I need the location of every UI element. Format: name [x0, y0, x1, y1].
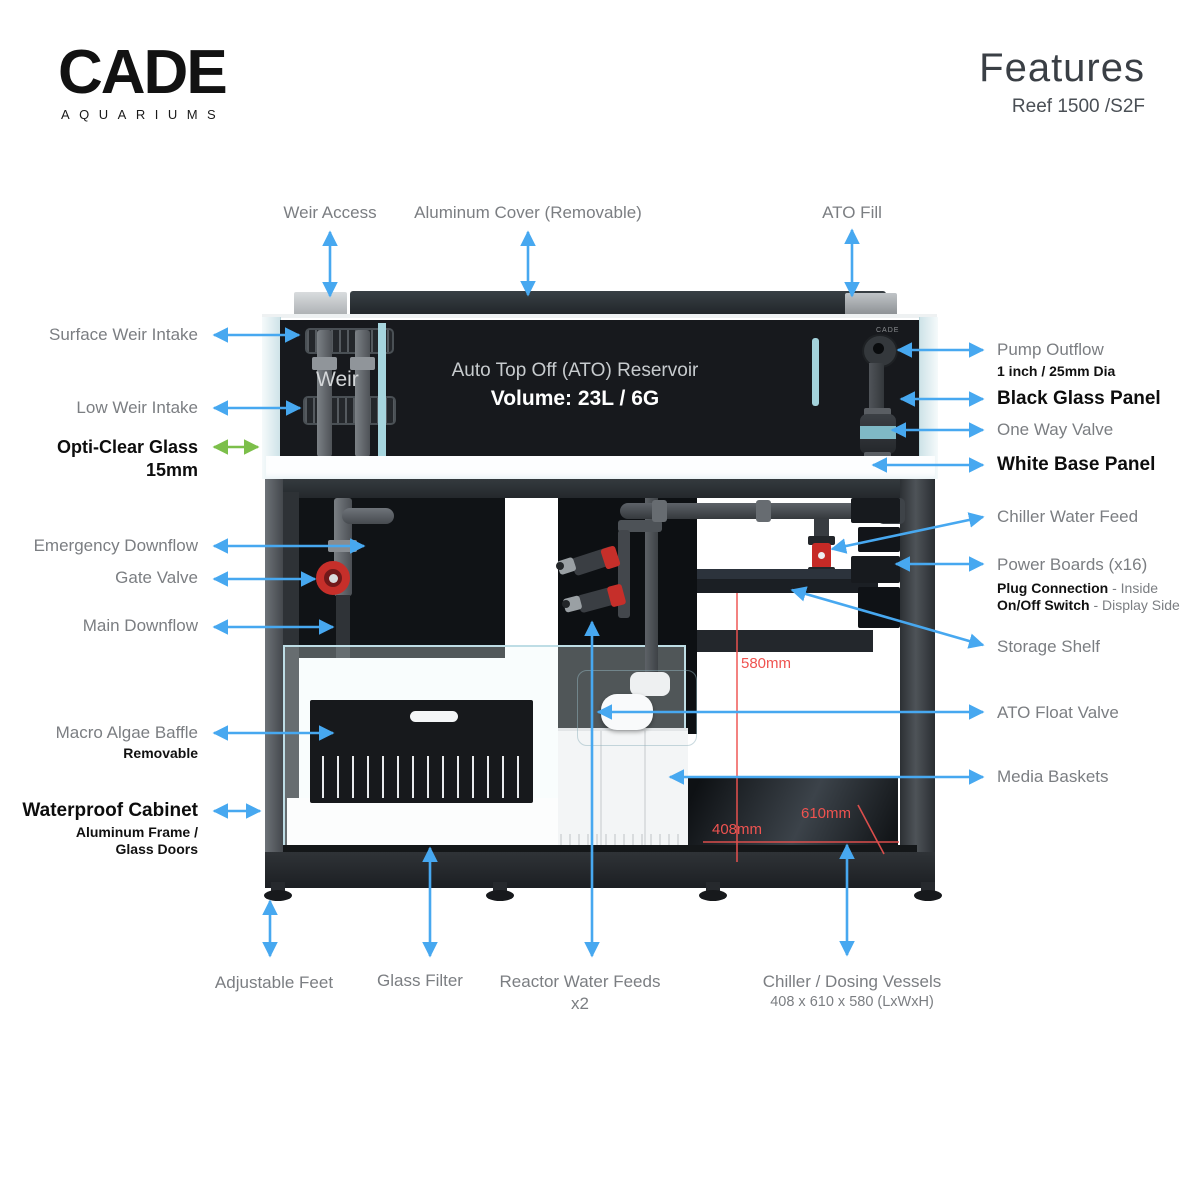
- cabinet-floor-right: [688, 778, 898, 852]
- reservoir-level-bar: [812, 338, 819, 406]
- dimension-580mm: 580mm: [741, 655, 791, 672]
- cabinet-post-right: [900, 479, 935, 888]
- weir-label: Weir: [316, 368, 359, 392]
- adjustable-foot: [914, 890, 942, 901]
- page-title: Features: [979, 46, 1145, 91]
- label-storage-shelf: Storage Shelf: [997, 636, 1100, 658]
- label-opti-clear-glass: Opti-Clear Glass 15mm: [57, 436, 198, 482]
- cabinet-post-left: [265, 479, 283, 888]
- reactor-valve-hole: [556, 562, 564, 570]
- pipe-fitting: [756, 500, 771, 522]
- label-surface-weir-intake: Surface Weir Intake: [49, 324, 198, 346]
- media-baskets: [558, 728, 688, 850]
- pipe-collar: [328, 540, 357, 552]
- label-black-glass-panel: Black Glass Panel: [997, 388, 1161, 410]
- tank-glass-left: [262, 317, 281, 479]
- label-white-base-panel: White Base Panel: [997, 454, 1155, 476]
- label-pump-outflow: Pump Outflow: [997, 339, 1104, 361]
- chiller-valve-dot: [818, 552, 825, 559]
- label-reactor-water-feeds-sub: x2: [571, 993, 589, 1015]
- baffle-handle: [410, 711, 458, 722]
- ato-float-outline: [577, 670, 697, 746]
- ato-reservoir-title: Auto Top Off (ATO) Reservoir: [400, 360, 750, 382]
- cade-logo-subtext: AQUARIUMS: [61, 107, 225, 122]
- label-power-boards-sub2: On/Off Switch - Display Side: [997, 597, 1180, 614]
- dimension-610mm: 610mm: [801, 805, 851, 822]
- pump-outflow-hole: [873, 343, 884, 354]
- adjustable-foot: [264, 890, 292, 901]
- cade-logo: CADE: [58, 42, 226, 104]
- tank-rim: [262, 314, 937, 318]
- weir-pipe: [317, 330, 332, 457]
- tank-brand-mark: CADE: [876, 327, 899, 334]
- weir-pipe: [355, 330, 370, 457]
- label-macro-algae-baffle: Macro Algae Baffle: [56, 722, 198, 744]
- label-low-weir-intake: Low Weir Intake: [76, 397, 198, 419]
- ato-reservoir-text: Auto Top Off (ATO) Reservoir Volume: 23L…: [400, 360, 750, 411]
- reactor-valve-hole: [562, 600, 570, 608]
- label-aluminum-cover: Aluminum Cover (Removable): [414, 202, 642, 224]
- adjustable-foot: [486, 890, 514, 901]
- label-chiller-water-feed: Chiller Water Feed: [997, 506, 1138, 528]
- white-base-panel: [266, 456, 935, 481]
- label-reactor-water-feeds: Reactor Water Feeds: [500, 971, 661, 993]
- power-board: [858, 527, 900, 552]
- gate-valve-hub: [329, 574, 338, 583]
- label-pump-outflow-sub: 1 inch / 25mm Dia: [997, 363, 1115, 380]
- label-waterproof-cabinet: Waterproof Cabinet: [22, 800, 198, 822]
- label-waterproof-cabinet-sub2: Glass Doors: [116, 841, 198, 858]
- pipe-fitting: [652, 500, 667, 522]
- page-subtitle: Reef 1500 /S2F: [1012, 96, 1145, 118]
- dimension-408mm: 408mm: [712, 821, 762, 838]
- ato-reservoir-volume: Volume: 23L / 6G: [400, 387, 750, 411]
- label-ato-float-valve: ATO Float Valve: [997, 702, 1119, 724]
- label-media-baskets: Media Baskets: [997, 766, 1109, 788]
- label-ato-fill: ATO Fill: [822, 202, 882, 224]
- label-gate-valve: Gate Valve: [115, 567, 198, 589]
- label-chiller-dosing-vessels: Chiller / Dosing Vessels: [763, 971, 942, 993]
- emergency-downflow-elbow: [342, 508, 394, 524]
- power-board: [858, 587, 900, 628]
- label-power-boards-sub1: Plug Connection - Inside: [997, 580, 1158, 597]
- power-board: [851, 498, 900, 523]
- power-board: [851, 556, 900, 583]
- weir-glass-strip: [378, 323, 386, 457]
- label-macro-algae-baffle-sub: Removable: [123, 745, 198, 762]
- adjustable-foot: [699, 890, 727, 901]
- tank-glass-right: [919, 317, 938, 479]
- label-emergency-downflow: Emergency Downflow: [34, 535, 198, 557]
- label-glass-filter: Glass Filter: [377, 970, 463, 992]
- cabinet-top-rail: [265, 479, 935, 498]
- label-adjustable-feet: Adjustable Feet: [215, 972, 333, 994]
- label-main-downflow: Main Downflow: [83, 615, 198, 637]
- features-infographic: CADE AQUARIUMS Features Reef 1500 /S2F W…: [0, 0, 1200, 1200]
- media-basket-divider: [644, 730, 646, 848]
- label-power-boards: Power Boards (x16): [997, 554, 1147, 576]
- label-chiller-dosing-vessels-sub: 408 x 610 x 580 (LxWxH): [770, 994, 934, 1011]
- label-waterproof-cabinet-sub1: Aluminum Frame /: [76, 824, 198, 841]
- storage-shelf-lower: [697, 630, 873, 652]
- label-weir-access: Weir Access: [283, 202, 376, 224]
- baffle-slats: [322, 756, 522, 798]
- label-one-way-valve: One Way Valve: [997, 419, 1113, 441]
- one-way-valve-band: [860, 426, 896, 439]
- cabinet-bottom-rail: [265, 852, 935, 888]
- media-basket-divider: [600, 730, 602, 848]
